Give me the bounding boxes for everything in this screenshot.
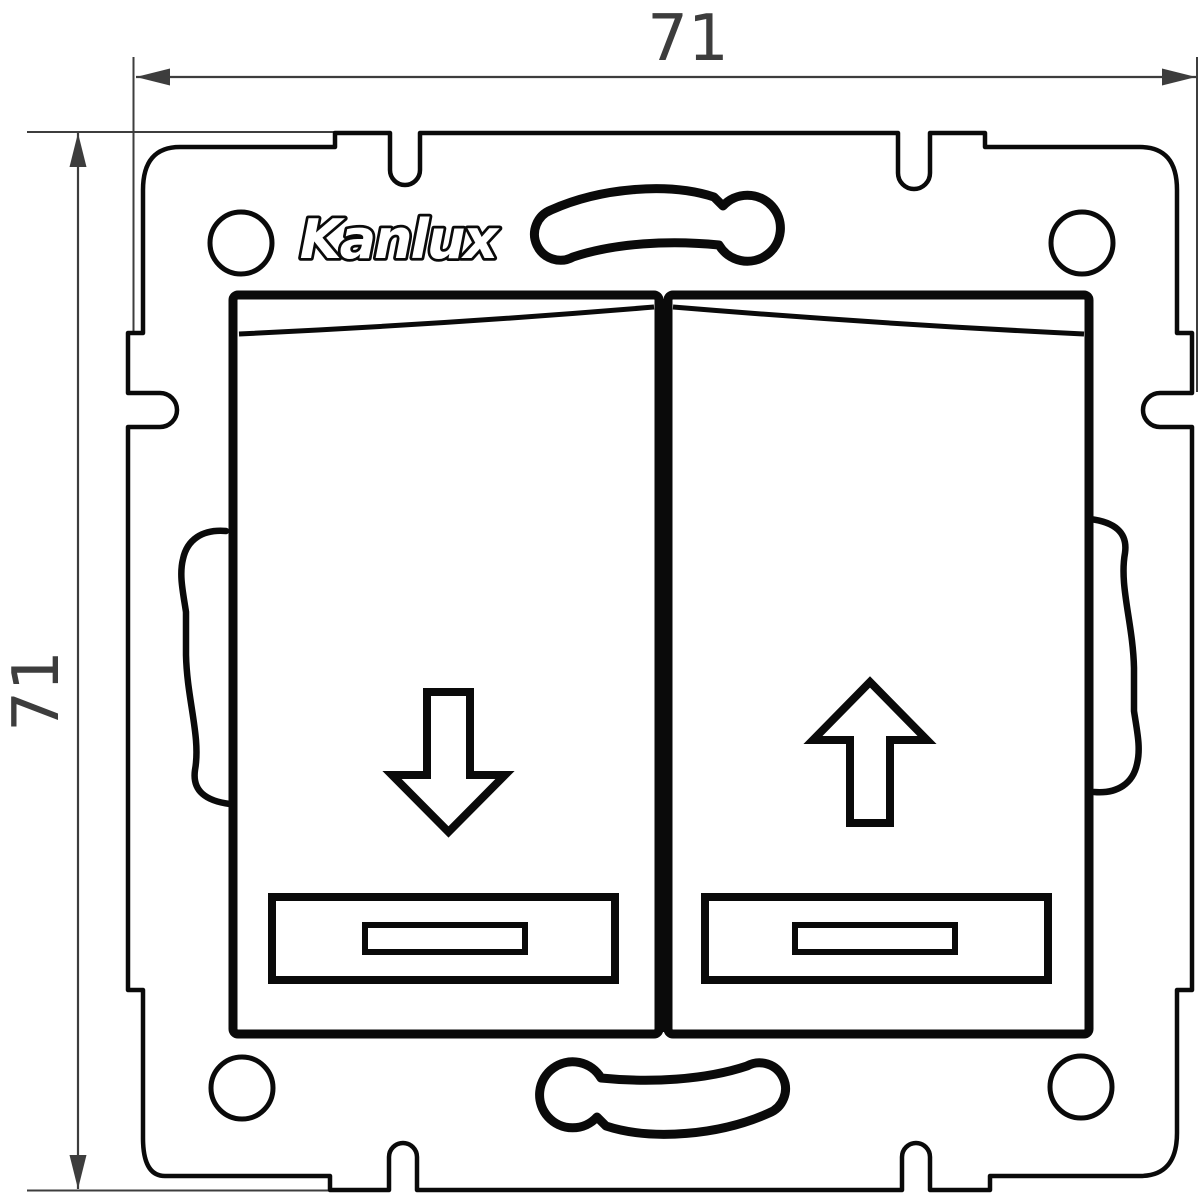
rocker-button-down[interactable] <box>233 295 659 1034</box>
arrowhead-left-icon <box>136 69 170 86</box>
screw-hole-bottom-left <box>211 1057 273 1119</box>
indicator-lens-right <box>795 925 955 952</box>
technical-drawing-page: 71 71 <box>0 0 1200 1200</box>
arrowhead-right-icon <box>1162 69 1196 86</box>
dimension-height-value: 71 <box>0 650 74 731</box>
dimension-width-value: 71 <box>647 2 728 76</box>
arrowhead-up-icon <box>70 133 87 167</box>
indicator-lens-left <box>365 925 525 952</box>
screw-hole-top-right <box>1051 212 1113 274</box>
switch-dimension-drawing: 71 71 <box>0 0 1200 1200</box>
screw-hole-top-left <box>210 212 272 274</box>
arrowhead-down-icon <box>70 1155 87 1189</box>
rocker-button-up[interactable] <box>668 295 1089 1034</box>
brand-logo: Kanlux <box>300 208 501 271</box>
screw-hole-bottom-right <box>1050 1056 1112 1118</box>
